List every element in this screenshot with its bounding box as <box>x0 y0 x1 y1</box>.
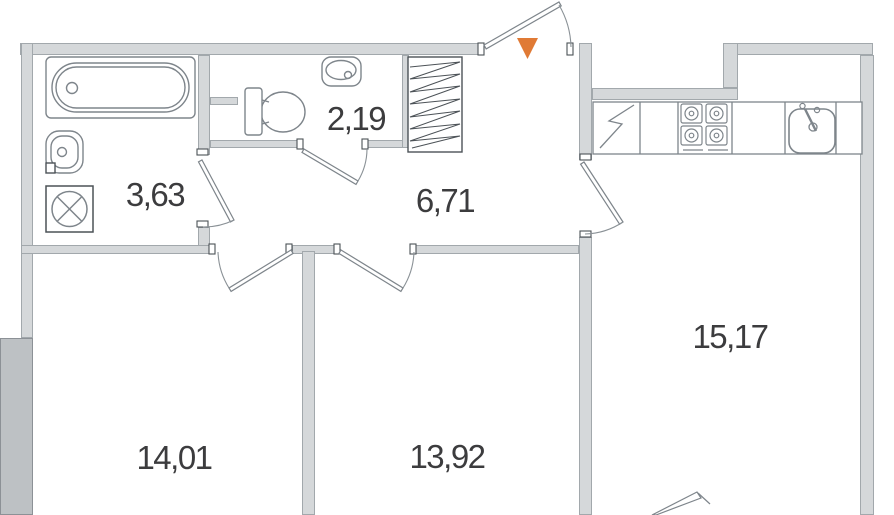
room-1-door <box>218 250 293 291</box>
room-2-door <box>339 250 414 291</box>
bathtub-icon <box>46 57 195 118</box>
bathroom-door <box>199 160 235 227</box>
washbasin-icon <box>46 131 83 173</box>
area-label-room-1: 14,01 <box>136 439 211 477</box>
area-label-kitchen-living: 15,17 <box>692 318 767 356</box>
area-label-hallway: 6,71 <box>416 182 474 220</box>
area-label-room-2: 13,92 <box>409 438 484 476</box>
door-jambs <box>197 43 591 254</box>
wc-door <box>302 149 367 184</box>
toilet-icon <box>245 88 305 135</box>
area-label-bathroom: 3,63 <box>126 176 184 214</box>
floor-plan: 3,63 2,19 6,71 14,01 13,92 15,17 <box>0 0 894 515</box>
balcony-door <box>652 492 710 515</box>
washing-machine-icon <box>46 186 93 232</box>
kitchen-door <box>581 162 623 234</box>
entrance-arrow-icon <box>517 38 538 59</box>
wc-sink-icon <box>322 57 361 86</box>
wardrobe-icon <box>408 57 462 152</box>
area-label-wc: 2,19 <box>327 100 385 138</box>
